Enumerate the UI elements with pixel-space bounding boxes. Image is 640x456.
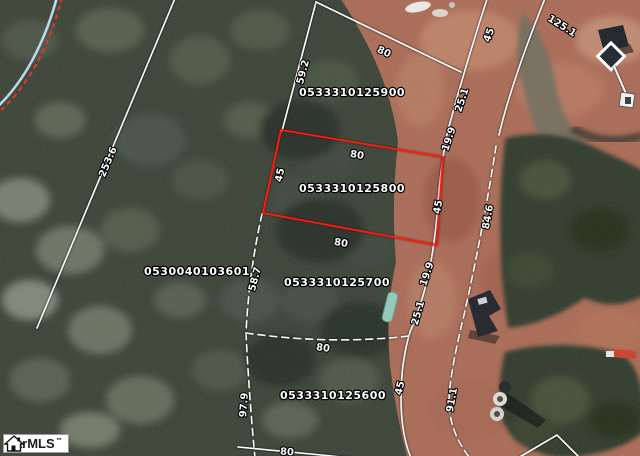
map-overlay: 8059.2253.64580804519.925.145125.184.619… (0, 0, 640, 456)
dimension-label-9: 45 (482, 27, 497, 44)
dimension-label-3: 45 (274, 167, 288, 183)
dimension-label-6: 45 (432, 199, 445, 215)
dimension-label-8: 25.1 (453, 87, 471, 114)
dimension-label-0: 80 (375, 45, 392, 61)
stream-line (0, 0, 57, 108)
dimension-label-19: 80 (280, 447, 295, 456)
parcel-number-label-0: 0533310125900 (299, 86, 405, 99)
parcel-number-label-1: 0533310125800 (299, 182, 405, 195)
house-logo-icon (4, 435, 24, 452)
dimension-label-5: 80 (333, 237, 349, 250)
parcel-number-label-2: 0530040103601 (144, 265, 250, 278)
dimension-label-10: 125.1 (545, 13, 578, 39)
dimension-label-12: 19.9 (418, 261, 436, 288)
dimension-label-18: 91.1 (445, 387, 460, 413)
dimension-label-15: 97.9 (238, 392, 251, 417)
parcel-900-north-line (316, 2, 461, 72)
parcel-600-north-line (246, 333, 409, 340)
parcel-number-label-3: 0533310125700 (284, 276, 390, 289)
dimension-label-13: 25.1 (410, 300, 427, 327)
mls-trademark: ™ (56, 438, 63, 445)
road-inner-edge (401, 0, 488, 456)
dimension-label-1: 59.2 (295, 59, 312, 86)
parcel-number-label-4: 0533310125600 (280, 389, 386, 402)
dimension-label-2: 253.6 (97, 145, 120, 178)
dimension-label-17: 45 (393, 380, 407, 396)
dimension-label-16: 80 (315, 342, 330, 355)
dimension-label-7: 19.9 (440, 126, 458, 153)
road-outer-edge (499, 0, 546, 135)
dimension-label-11: 84.6 (481, 204, 496, 230)
bottom-triangle-line (518, 435, 580, 456)
aerial-map: 8059.2253.64580804519.925.145125.184.619… (0, 0, 640, 456)
dimension-label-4: 80 (349, 149, 365, 162)
mls-watermark: garMLS ™ (3, 434, 69, 453)
